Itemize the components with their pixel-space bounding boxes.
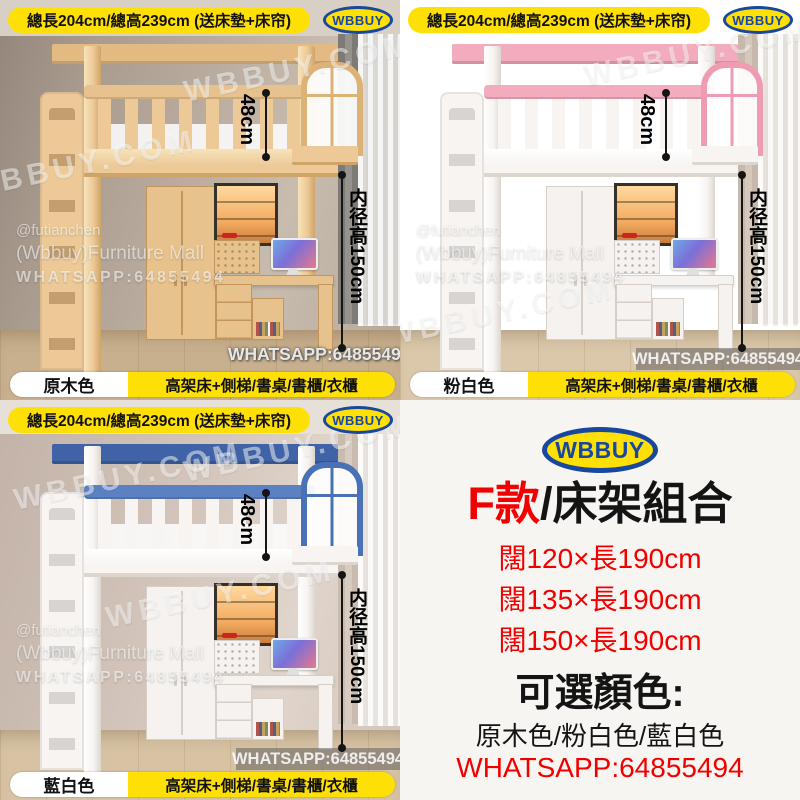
watermark-whatsapp: WHATSAPP:64855494 (416, 269, 625, 287)
watermark-store: (Wbbuy)Furniture Mall (416, 243, 625, 265)
watermark-whatsapp: WHATSAPP:64855494 (16, 269, 225, 287)
desk-leg (718, 284, 733, 350)
wbbuy-logo: WBBUY (723, 6, 793, 34)
size-option: 闊120×長190cm (400, 538, 800, 579)
whatsapp-floor-watermark: WHATSAPP:64855494 (236, 748, 400, 770)
caption-bar: 藍白色 高架床+側梯/書桌/書櫃/衣櫃 (10, 772, 395, 797)
book-shelf (652, 298, 684, 340)
measure-label-inner-height: 内径高150cm (347, 588, 366, 704)
size-options: 闊120×長190cm 闊135×長190cm 闊150×長190cm (400, 538, 800, 661)
whatsapp-floor-watermark: WHATSAPP:64855494 (228, 344, 400, 365)
whatsapp-contact: WHATSAPP:64855494 (400, 752, 800, 784)
color-choices-list: 原木色/粉白色/藍白色 (400, 716, 800, 753)
size-option: 闊135×長190cm (400, 579, 800, 620)
watermark-handle: @futianchen (416, 222, 625, 239)
watermark-handle: @futianchen (16, 222, 225, 239)
quadrant-pink-white: WBBUY.COM WBBUY.COM @futianchen (Wbbuy)F… (400, 0, 800, 400)
model-title: F款/床架組合 (400, 480, 800, 527)
features-label: 高架床+側梯/書桌/書櫃/衣櫃 (128, 372, 395, 397)
arch-window (701, 62, 763, 156)
desk-leg (318, 284, 333, 350)
guardrail-slats (98, 497, 300, 550)
computer-monitor (271, 638, 318, 670)
seller-watermark: @futianchen (Wbbuy)Furniture Mall WHATSA… (416, 222, 625, 287)
measure-label-48cm: 48cm (237, 494, 257, 545)
model-title-rest: /床架組合 (540, 478, 733, 529)
window-flower-box (692, 146, 758, 165)
seller-watermark: @futianchen (Wbbuy)Furniture Mall WHATSA… (16, 222, 225, 287)
color-name-label: 藍白色 (10, 772, 128, 797)
features-label: 高架床+側梯/書桌/書櫃/衣櫃 (128, 772, 395, 797)
watermark-whatsapp: WHATSAPP:64855494 (16, 669, 225, 687)
whatsapp-floor-watermark: WHATSAPP:64855494 (636, 348, 800, 370)
window-flower-box (292, 146, 358, 165)
dimension-banner: 總長204cm/總高239cm (送床墊+床帘) (8, 7, 310, 33)
drawer-unit (216, 284, 252, 340)
info-panel: WBBUY F款/床架組合 闊120×長190cm 闊135×長190cm 闊1… (400, 400, 800, 800)
size-option: 闊150×長190cm (400, 620, 800, 661)
quadrant-natural-wood: WBBUY.COM WBBUY.COM @futianchen (Wbbuy)F… (0, 0, 400, 400)
book-shelf (252, 298, 284, 340)
measure-line-48cm (265, 93, 267, 157)
measure-line-inner-height (741, 175, 743, 348)
measure-line-48cm (265, 493, 267, 557)
book-shelf (252, 698, 284, 740)
color-choices-heading: 可選顏色: (400, 662, 800, 718)
desk-leg (318, 684, 333, 750)
watermark-handle: @futianchen (16, 622, 225, 639)
computer-monitor (671, 238, 718, 270)
arch-window (301, 462, 363, 556)
measure-line-inner-height (341, 575, 343, 748)
wbbuy-logo: WBBUY (323, 406, 393, 434)
dimension-banner: 總長204cm/總高239cm (送床墊+床帘) (8, 407, 310, 433)
model-code: F款 (467, 478, 540, 529)
watermark-store: (Wbbuy)Furniture Mall (16, 643, 225, 665)
color-name-label: 原木色 (10, 372, 128, 397)
features-label: 高架床+側梯/書桌/書櫃/衣櫃 (528, 372, 795, 397)
wbbuy-logo: WBBUY (542, 427, 658, 473)
seller-watermark: @futianchen (Wbbuy)Furniture Mall WHATSA… (16, 622, 225, 687)
drawer-unit (616, 284, 652, 340)
measure-label-inner-height: 内径高150cm (747, 188, 766, 304)
wbbuy-logo: WBBUY (323, 6, 393, 34)
measure-label-48cm: 48cm (237, 94, 257, 145)
product-collage: WBBUY.COM WBBUY.COM @futianchen (Wbbuy)F… (0, 0, 800, 800)
color-name-label: 粉白色 (410, 372, 528, 397)
guardrail-slats (498, 97, 700, 150)
watermark-store: (Wbbuy)Furniture Mall (16, 243, 225, 265)
measure-line-inner-height (341, 175, 343, 348)
dimension-banner: 總長204cm/總高239cm (送床墊+床帘) (408, 7, 710, 33)
caption-bar: 原木色 高架床+側梯/書桌/書櫃/衣櫃 (10, 372, 395, 397)
measure-line-48cm (665, 93, 667, 157)
measure-label-inner-height: 内径高150cm (347, 188, 366, 304)
caption-bar: 粉白色 高架床+側梯/書桌/書櫃/衣櫃 (410, 372, 795, 397)
computer-monitor (271, 238, 318, 270)
quadrant-blue-white: WBBUY.COM WBBUY.COM WBBUY.COM @futianche… (0, 400, 400, 800)
measure-label-48cm: 48cm (637, 94, 657, 145)
drawer-unit (216, 684, 252, 740)
